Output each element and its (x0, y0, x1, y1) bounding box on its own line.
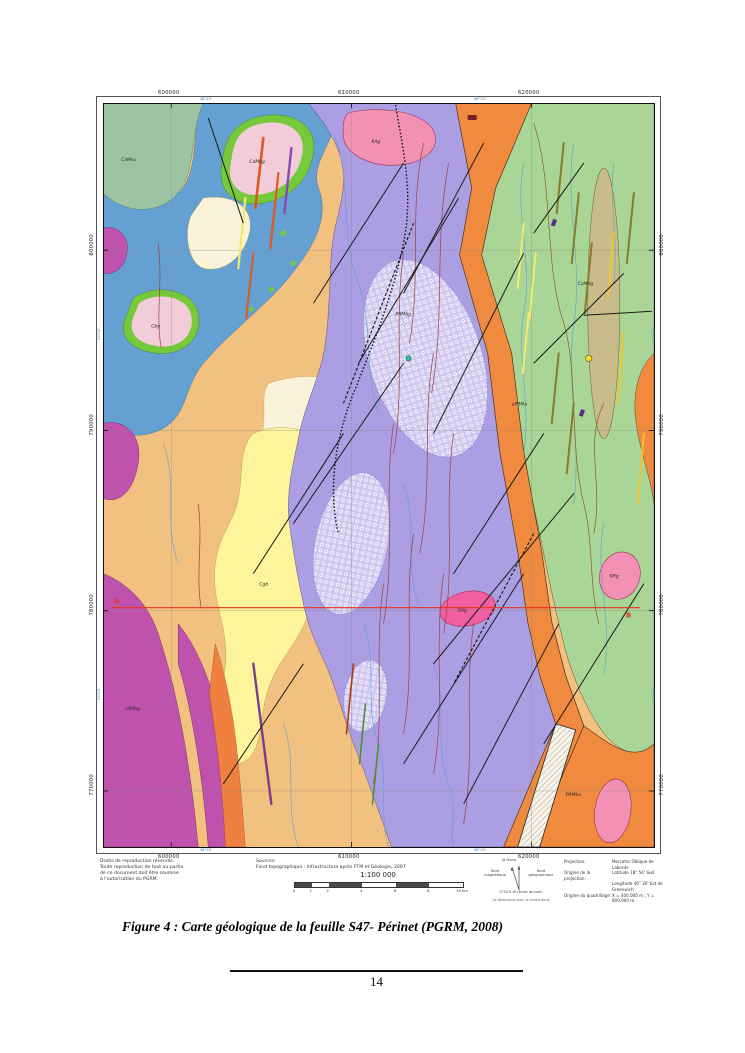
grid-label-top: 620000 (518, 90, 540, 96)
geo-label-bottom: 48°20' (474, 848, 486, 852)
projection-origin-label: Origine de la projection: (564, 870, 612, 881)
grid-label-left: 770000 (89, 774, 95, 796)
geo-label-right: 19°05' (652, 688, 656, 700)
copyright-line: à l'autorisation du PGRM. (100, 877, 220, 883)
scale-tick: 2 (326, 888, 328, 893)
geo-label-bottom: 48°15' (200, 848, 212, 852)
grid-label-left: 800000 (89, 234, 95, 256)
scale-seg (396, 883, 430, 887)
scale-tick: 4 (360, 888, 362, 893)
north-declination: 0°52'0 W (écart annuel) (478, 890, 564, 894)
north-magnetic-label: Nord magnétique (482, 870, 508, 878)
grid-label-top: 610000 (338, 90, 360, 96)
scale-ticks: 0 1 2 4 6 8 10 km (294, 888, 462, 894)
scale-tick: 6 (394, 888, 396, 893)
geo-label-top: 48°15' (200, 97, 212, 101)
sources-block: Sources: Fond topographique : Infrastruc… (256, 859, 466, 871)
scale-ratio: 1:100 000 (288, 871, 468, 879)
scale-tick: 8 (427, 888, 429, 893)
page-number: 14 (230, 974, 523, 990)
projection-label: Projection: (564, 859, 612, 870)
map-marginalia-strip: Droits de reproduction réservés. Toute r… (96, 857, 659, 909)
scale-tick: 10 km (456, 888, 468, 893)
projection-origin-value2: Longitude 46° 26' Est de Greenwich (612, 881, 670, 892)
geo-label-right: 19°00' (652, 328, 656, 340)
scale-seg (295, 883, 312, 887)
projection-origin-label2 (564, 881, 612, 892)
projection-value: Mercator Oblique de Laborde (612, 859, 670, 870)
grid-label-right: 780000 (659, 594, 665, 616)
footer-rule (230, 970, 523, 972)
document-page: A B CaMsu CaMbg Cbg KAg PRMbg Gbg KRg (0, 0, 745, 1053)
north-note: La déclinaison pour le centre de la (476, 898, 566, 902)
north-geographic-label: Nord géographique (526, 870, 556, 878)
scale-seg (312, 883, 329, 887)
copyright-block: Droits de reproduction réservés. Toute r… (100, 859, 220, 883)
geologic-map-sheet: A B CaMsu CaMbg Cbg KAg PRMbg Gbg KRg (88, 88, 668, 912)
grid-label-top: 600000 (158, 90, 180, 96)
scale-seg (362, 883, 396, 887)
north-arrow-block: (6 Mars) Nord magnétique Nord géographiq… (486, 858, 556, 906)
scale-seg (329, 883, 363, 887)
grid-label-right: 800000 (659, 234, 665, 256)
grid-label-left: 790000 (89, 414, 95, 436)
map-neatline (103, 103, 655, 848)
scale-tick: 1 (310, 888, 312, 893)
geo-label-top: 48°20' (474, 97, 486, 101)
projection-origin-value: Latitude 18° 54' Sud (612, 870, 670, 881)
scale-seg (429, 883, 463, 887)
grid-label-right: 790000 (659, 414, 665, 436)
projection-block: Projection: Mercator Oblique de Laborde … (564, 859, 670, 904)
figure-caption: Figure 4 : Carte géologique de la feuill… (122, 919, 642, 935)
grid-origin-value: X = 400.000 m ; Y = 800.000 m (612, 893, 670, 904)
geo-label-left: 19°00' (97, 328, 101, 340)
grid-label-left: 780000 (89, 594, 95, 616)
geo-label-left: 19°05' (97, 688, 101, 700)
grid-origin-label: Origine du quadrillage: (564, 893, 612, 904)
grid-label-right: 770000 (659, 774, 665, 796)
scale-tick: 0 (293, 888, 295, 893)
